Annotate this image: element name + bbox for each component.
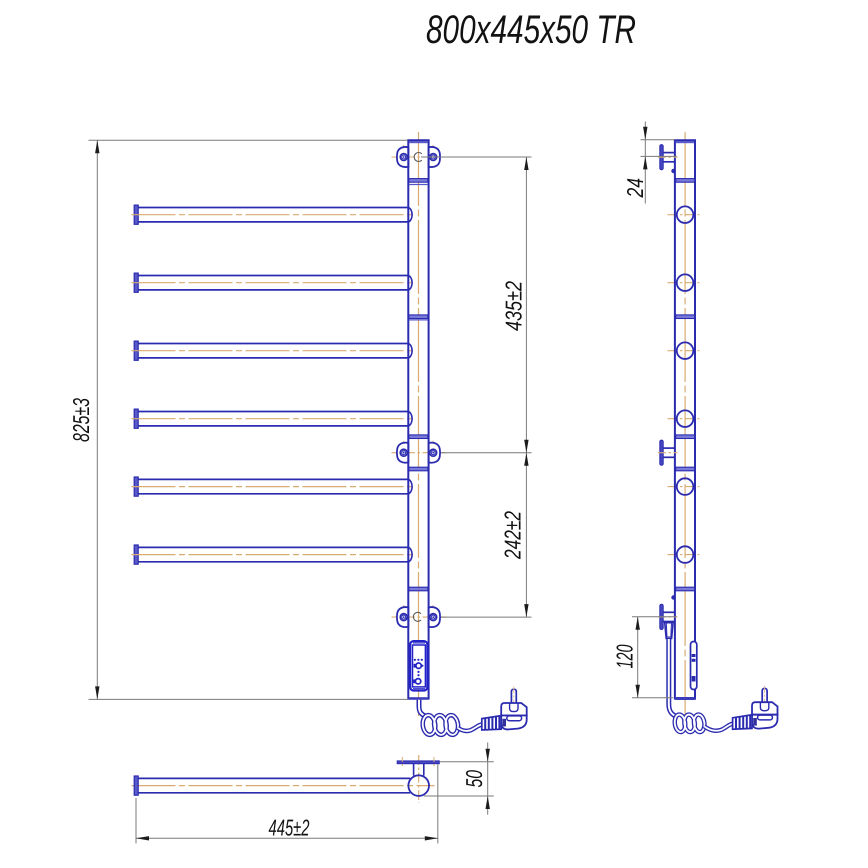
svg-text:800x445x50 TR: 800x445x50 TR [426,8,636,52]
svg-text:50: 50 [461,770,487,788]
svg-text:435±2: 435±2 [501,281,527,331]
svg-text:445±2: 445±2 [269,815,310,841]
svg-text:24: 24 [622,178,648,198]
svg-text:242±2: 242±2 [500,511,526,560]
svg-text:825±3: 825±3 [68,398,94,442]
svg-text:120: 120 [612,644,638,668]
